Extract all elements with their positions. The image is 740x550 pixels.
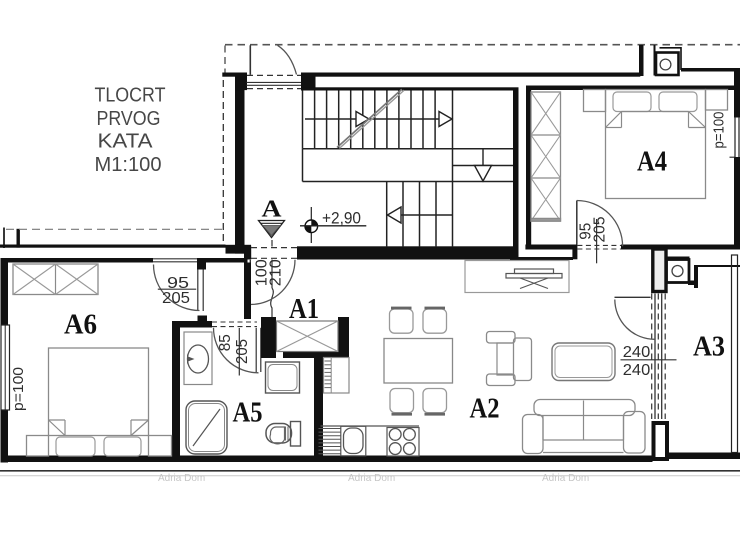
svg-text:A: A (262, 197, 283, 223)
svg-text:205: 205 (234, 339, 251, 364)
svg-text:p=100: p=100 (10, 367, 27, 411)
svg-text:p=100: p=100 (711, 112, 728, 149)
svg-text:Adria Dom: Adria Dom (158, 473, 205, 484)
svg-text:205: 205 (592, 216, 609, 242)
svg-text:TLOCRT: TLOCRT (95, 85, 166, 107)
svg-text:KATA: KATA (98, 131, 154, 153)
svg-text:+2,90: +2,90 (322, 210, 361, 228)
svg-text:PRVOG: PRVOG (97, 108, 161, 130)
svg-text:Adria Dom: Adria Dom (348, 473, 395, 484)
svg-text:A5: A5 (233, 397, 263, 429)
svg-text:A1: A1 (289, 293, 319, 325)
svg-text:A3: A3 (693, 331, 725, 363)
svg-text:205: 205 (162, 290, 190, 307)
svg-text:M1:100: M1:100 (95, 154, 162, 176)
svg-text:A6: A6 (64, 309, 97, 341)
svg-text:240: 240 (623, 362, 651, 379)
svg-text:A4: A4 (637, 146, 667, 178)
svg-text:Adria Dom: Adria Dom (542, 473, 589, 484)
svg-text:85: 85 (217, 334, 234, 351)
svg-text:A2: A2 (470, 393, 500, 425)
svg-text:210: 210 (268, 259, 285, 286)
svg-text:240: 240 (623, 344, 651, 361)
